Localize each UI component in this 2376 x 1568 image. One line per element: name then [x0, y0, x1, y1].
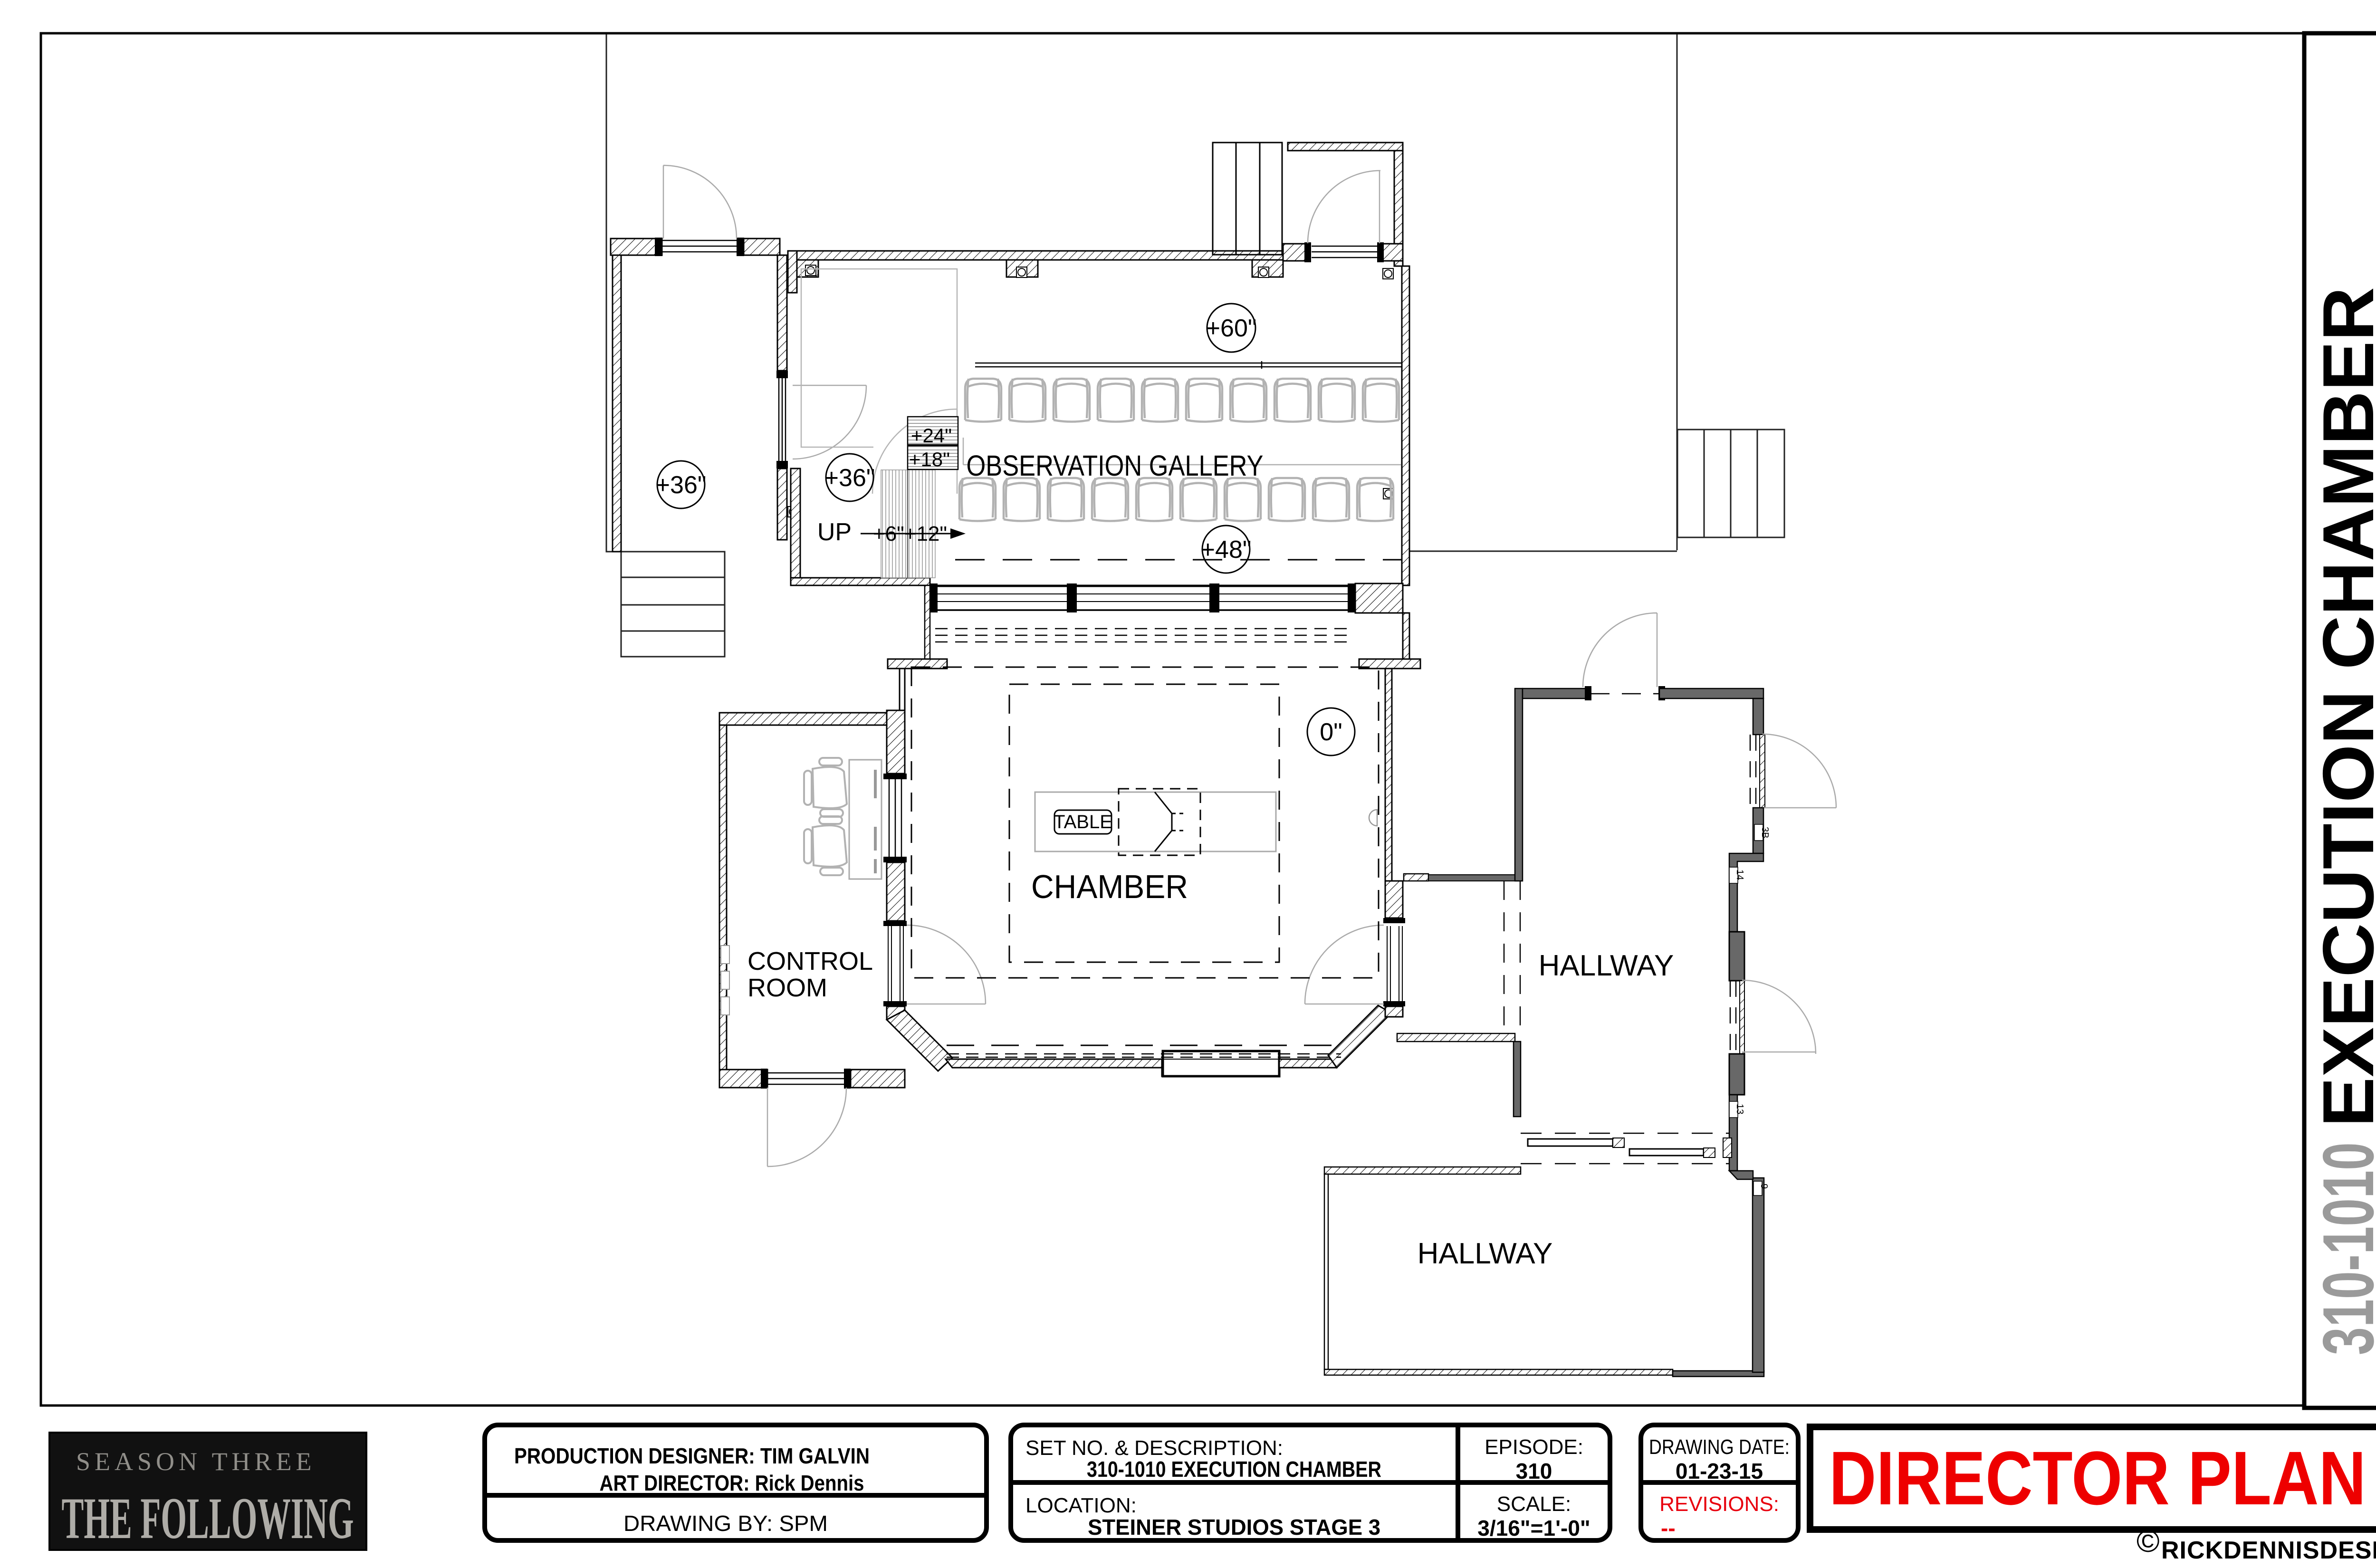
svg-text:DRAWING BY: SPM: DRAWING BY: SPM — [623, 1511, 828, 1536]
svg-text:310-1010: 310-1010 — [2308, 1142, 2376, 1355]
svg-text:HALLWAY: HALLWAY — [1418, 1237, 1553, 1270]
svg-text:©: © — [2136, 1523, 2160, 1558]
svg-text:+60": +60" — [1206, 315, 1257, 342]
svg-text:ART DIRECTOR: Rick Dennis: ART DIRECTOR: Rick Dennis — [600, 1471, 864, 1495]
svg-text:ROOM: ROOM — [747, 974, 827, 1002]
svg-text:+6"+12": +6"+12" — [873, 522, 947, 545]
svg-text:DIRECTOR PLAN: DIRECTOR PLAN — [1829, 1435, 2366, 1520]
svg-text:+24": +24" — [911, 424, 952, 447]
svg-text:+36": +36" — [824, 464, 875, 492]
svg-text:THE FOLLOWING: THE FOLLOWING — [62, 1486, 354, 1551]
svg-text:+18": +18" — [909, 448, 950, 470]
svg-text:TABLE: TABLE — [1054, 812, 1112, 832]
svg-text:--: -- — [1661, 1516, 1676, 1540]
svg-text:13: 13 — [1734, 1104, 1745, 1114]
svg-text:CONTROL: CONTROL — [747, 947, 873, 975]
svg-text:EXECUTION CHAMBER: EXECUTION CHAMBER — [2308, 287, 2376, 1127]
svg-text:REVISIONS:: REVISIONS: — [1659, 1492, 1779, 1516]
svg-text:SCALE:: SCALE: — [1497, 1492, 1571, 1516]
svg-text:9: 9 — [1759, 1184, 1769, 1189]
svg-text:SEASON THREE: SEASON THREE — [76, 1447, 316, 1476]
svg-text:310-1010 EXECUTION CHAMBER: 310-1010 EXECUTION CHAMBER — [1087, 1457, 1381, 1482]
svg-text:EPISODE:: EPISODE: — [1485, 1435, 1583, 1459]
svg-text:HALLWAY: HALLWAY — [1539, 949, 1674, 982]
svg-text:SET NO. & DESCRIPTION:: SET NO. & DESCRIPTION: — [1025, 1436, 1283, 1460]
svg-text:STEINER STUDIOS STAGE 3: STEINER STUDIOS STAGE 3 — [1088, 1515, 1380, 1539]
svg-text:UP: UP — [817, 518, 852, 546]
svg-text:310: 310 — [1516, 1459, 1552, 1483]
svg-text:OBSERVATION GALLERY: OBSERVATION GALLERY — [967, 449, 1264, 482]
svg-text:3/16"=1'-0": 3/16"=1'-0" — [1477, 1516, 1590, 1540]
svg-text:RICKDENNISDESIGN: RICKDENNISDESIGN — [2161, 1537, 2376, 1564]
svg-text:PRODUCTION DESIGNER: TIM GALV: PRODUCTION DESIGNER: TIM GALVIN — [514, 1444, 870, 1468]
svg-text:01-23-15: 01-23-15 — [1676, 1459, 1763, 1483]
svg-text:DRAWING DATE:: DRAWING DATE: — [1649, 1435, 1790, 1459]
svg-text:3B: 3B — [1760, 827, 1770, 838]
svg-text:0": 0" — [1320, 718, 1342, 746]
svg-text:14: 14 — [1734, 870, 1745, 880]
svg-text:LOCATION:: LOCATION: — [1025, 1494, 1137, 1517]
svg-text:CHAMBER: CHAMBER — [1031, 868, 1188, 905]
svg-text:+36": +36" — [656, 471, 707, 499]
